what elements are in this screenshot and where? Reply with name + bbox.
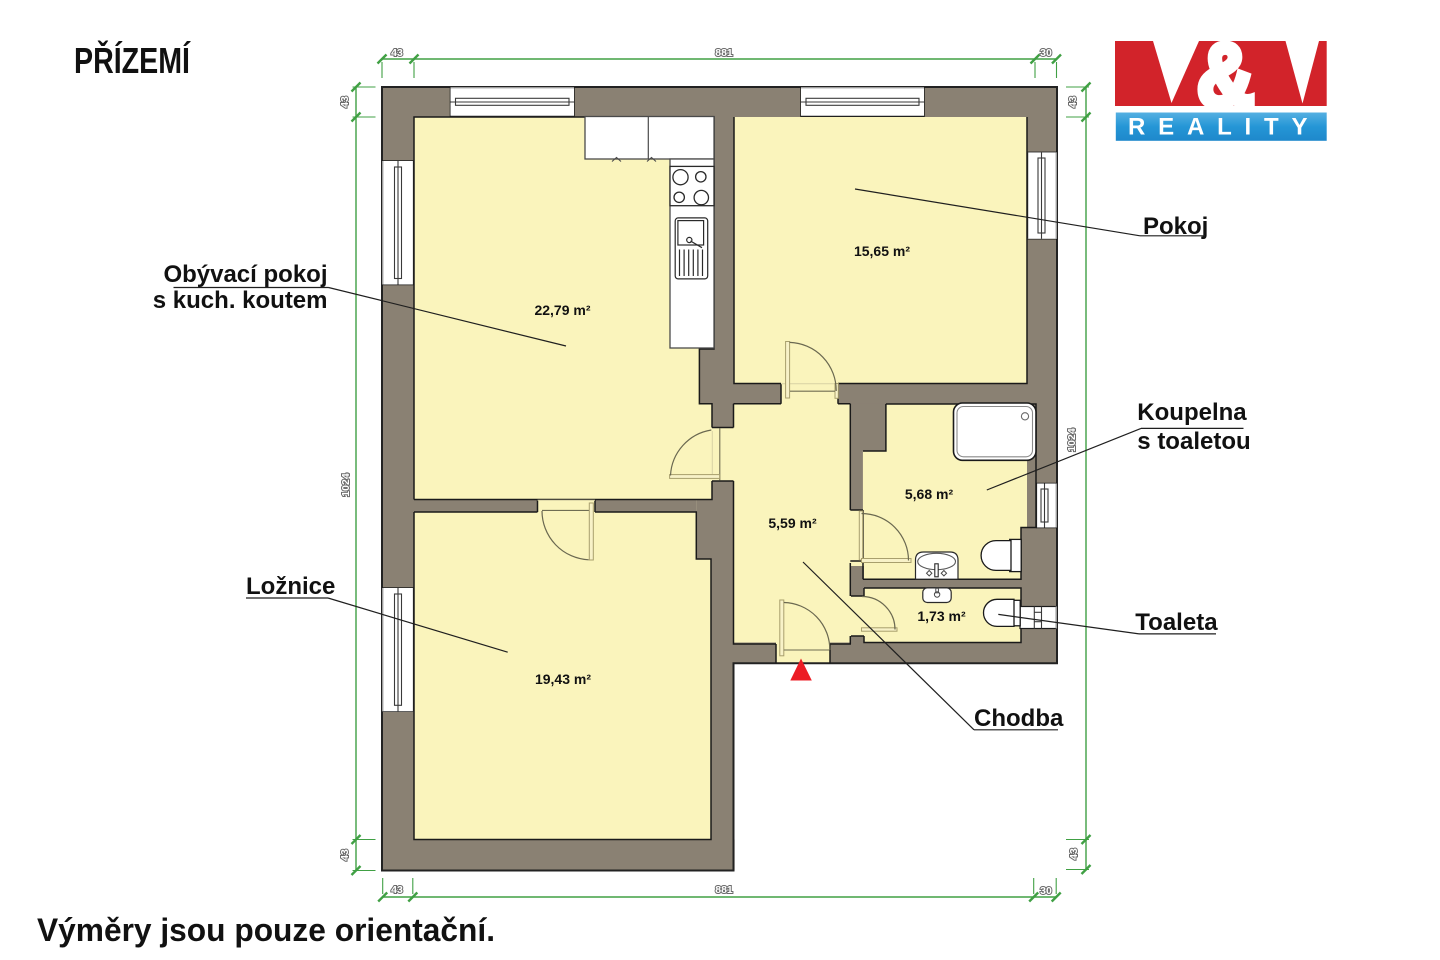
svg-text:15,65 m²: 15,65 m² <box>854 243 910 259</box>
svg-text:1,73 m²: 1,73 m² <box>917 608 966 624</box>
svg-text:1024: 1024 <box>340 473 352 497</box>
svg-text:30: 30 <box>1040 47 1052 59</box>
svg-text:REALITY: REALITY <box>1128 114 1320 141</box>
svg-text:43: 43 <box>339 96 351 108</box>
svg-text:Obývací pokoj: Obývací pokoj <box>163 261 327 288</box>
svg-text:881: 881 <box>715 47 733 59</box>
svg-text:Toaleta: Toaleta <box>1135 609 1218 636</box>
svg-text:43: 43 <box>391 884 403 896</box>
svg-text:Chodba: Chodba <box>974 705 1064 732</box>
svg-text:43: 43 <box>391 47 403 59</box>
svg-text:5,59 m²: 5,59 m² <box>768 515 817 531</box>
svg-text:s toaletou: s toaletou <box>1137 428 1250 455</box>
svg-text:s kuch. koutem: s kuch. koutem <box>153 287 328 314</box>
svg-text:22,79 m²: 22,79 m² <box>534 302 590 318</box>
svg-text:PŘÍZEMÍ: PŘÍZEMÍ <box>74 39 191 81</box>
svg-text:43: 43 <box>1068 848 1080 860</box>
svg-text:1024: 1024 <box>1066 428 1078 452</box>
svg-text:&: & <box>1197 24 1254 125</box>
svg-text:Ložnice: Ložnice <box>246 573 335 600</box>
svg-text:43: 43 <box>1067 96 1079 108</box>
svg-text:19,43 m²: 19,43 m² <box>535 671 591 687</box>
svg-text:5,68 m²: 5,68 m² <box>905 486 954 502</box>
svg-text:43: 43 <box>339 849 351 861</box>
svg-text:Výměry jsou pouze orientační.: Výměry jsou pouze orientační. <box>37 912 495 948</box>
svg-text:30: 30 <box>1040 885 1052 897</box>
svg-text:Koupelna: Koupelna <box>1137 399 1247 426</box>
svg-text:881: 881 <box>715 884 733 896</box>
